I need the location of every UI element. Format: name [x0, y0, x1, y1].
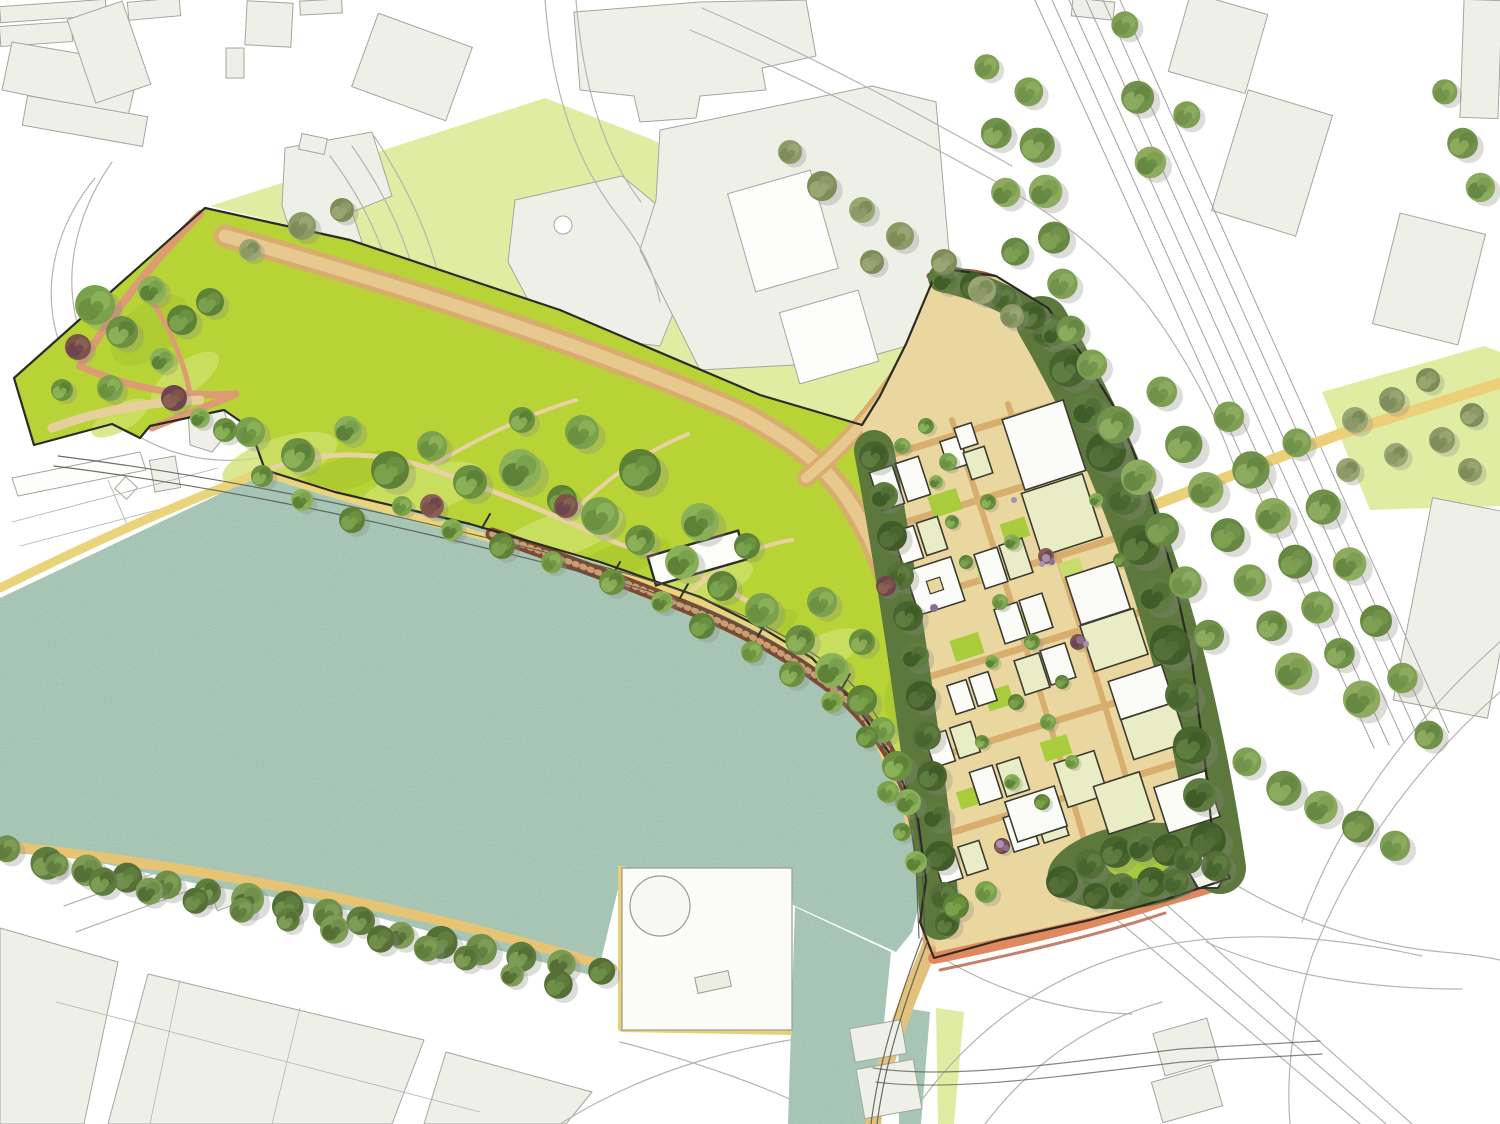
tree-canopy — [860, 207, 868, 215]
tree-canopy — [788, 150, 795, 157]
tree-canopy — [981, 741, 985, 745]
tree-canopy — [1226, 414, 1235, 423]
tree-canopy — [510, 972, 517, 979]
tree-canopy — [719, 583, 728, 592]
tree-canopy — [987, 500, 992, 505]
tree-canopy — [1112, 421, 1123, 432]
tree-canopy — [985, 64, 993, 72]
tree-canopy — [906, 799, 914, 807]
tree-canopy — [881, 493, 889, 501]
tree-canopy — [556, 982, 565, 991]
tree-canopy — [193, 898, 201, 906]
tree-canopy — [1213, 863, 1222, 872]
tree-canopy — [1392, 843, 1401, 852]
tree-canopy — [464, 956, 471, 963]
tree-canopy — [1051, 234, 1061, 244]
tree-canopy — [797, 637, 806, 646]
tree-canopy — [1346, 468, 1353, 475]
tree-canopy — [564, 504, 571, 511]
tree-canopy — [1159, 389, 1168, 398]
tree-canopy — [340, 208, 347, 215]
tree-canopy — [897, 233, 905, 241]
tree-canopy — [1121, 495, 1131, 505]
flower-bed — [1042, 554, 1050, 562]
tree-canopy — [119, 329, 129, 339]
tree-canopy — [198, 416, 204, 422]
site-plan-map — [0, 0, 1500, 1124]
tree-canopy — [1102, 448, 1114, 460]
tree-canopy — [929, 773, 938, 782]
tree-canopy — [1179, 692, 1189, 702]
tree-canopy — [984, 890, 991, 897]
tree-canopy — [295, 452, 305, 462]
tree-canopy — [900, 830, 905, 835]
tree-canopy — [1337, 650, 1346, 659]
tree-canopy — [207, 299, 215, 307]
tree-canopy — [332, 927, 341, 936]
tree-canopy — [945, 922, 952, 929]
flower-bed — [996, 840, 1004, 848]
tree-canopy — [223, 428, 230, 435]
tree-canopy — [951, 521, 955, 525]
tree-canopy — [1390, 397, 1398, 405]
tree-canopy — [1148, 159, 1157, 168]
tree-canopy — [925, 424, 930, 429]
building — [856, 1059, 922, 1118]
tree-canopy — [300, 498, 307, 505]
tree-canopy — [1113, 849, 1123, 859]
tree-canopy — [286, 917, 293, 924]
tree-canopy — [1139, 844, 1148, 853]
tree-canopy — [933, 813, 941, 821]
tree-canopy — [519, 954, 528, 963]
tree-canopy — [1013, 249, 1021, 257]
tree-canopy — [1292, 558, 1302, 568]
tree-canopy — [467, 479, 477, 489]
context-building — [226, 48, 244, 78]
plaza-circle — [630, 876, 690, 936]
tree-canopy — [55, 862, 62, 869]
tree-canopy — [759, 607, 769, 617]
tree-canopy — [1353, 417, 1361, 425]
tree-canopy — [597, 512, 608, 523]
tree-canopy — [1060, 281, 1069, 290]
tree-canopy — [1119, 559, 1123, 563]
tree-canopy — [1065, 364, 1076, 375]
tree-canopy — [76, 344, 84, 352]
context-building — [245, 1, 293, 47]
tree-canopy — [1166, 641, 1178, 653]
tree-canopy — [1011, 780, 1016, 785]
context-building — [554, 216, 572, 234]
tree-canopy — [247, 429, 256, 438]
tree-canopy — [610, 579, 618, 587]
tree-canopy — [1426, 732, 1435, 741]
tree-canopy — [1205, 836, 1216, 847]
tree-canopy — [790, 671, 798, 679]
flower-bed — [1083, 641, 1089, 647]
tree-canopy — [1281, 785, 1292, 796]
tree-canopy — [636, 466, 649, 479]
tree-canopy — [1294, 440, 1303, 449]
tree-canopy — [880, 727, 888, 735]
tree-canopy — [745, 543, 753, 551]
tree-canopy — [1184, 112, 1192, 120]
tree-canopy — [1029, 313, 1037, 321]
tree-canopy — [1122, 22, 1130, 30]
tree-canopy — [1400, 675, 1409, 684]
tree-canopy — [4, 846, 12, 854]
tree-canopy — [1470, 413, 1477, 420]
tree-canopy — [430, 504, 437, 511]
tree-canopy — [1059, 879, 1069, 889]
tree-canopy — [1314, 604, 1324, 614]
tree-canopy — [865, 735, 872, 742]
tree-canopy — [1159, 526, 1169, 536]
tree-canopy — [860, 639, 868, 647]
tree-canopy — [1180, 441, 1191, 452]
tree-canopy — [400, 504, 406, 510]
tree-canopy — [1041, 800, 1046, 805]
tree-canopy — [550, 560, 557, 567]
tree-canopy — [1320, 503, 1331, 514]
tree-canopy — [954, 903, 962, 911]
tree-canopy — [1225, 532, 1235, 542]
tree-canopy — [429, 443, 438, 452]
tree-canopy — [387, 466, 398, 477]
tree-canopy — [830, 700, 837, 707]
tree-canopy — [1290, 667, 1301, 678]
tree-canopy — [1358, 695, 1369, 706]
tree-canopy — [149, 287, 157, 295]
tree-canopy — [179, 317, 188, 326]
tree-canopy — [993, 130, 1002, 139]
tree-canopy — [599, 969, 607, 977]
tree-canopy — [100, 879, 109, 888]
tree-canopy — [450, 528, 457, 535]
tree-canopy — [1478, 184, 1487, 193]
tree-canopy — [859, 697, 868, 706]
tree-canopy — [1318, 804, 1328, 814]
masterplan-svg — [0, 0, 1500, 1124]
tree-canopy — [901, 444, 906, 449]
tree-canopy — [1206, 632, 1215, 641]
tree-canopy — [108, 385, 116, 393]
tree-canopy — [260, 474, 267, 481]
tree-canopy — [240, 908, 247, 915]
tree-canopy — [1269, 623, 1278, 632]
tree-canopy — [1182, 579, 1192, 589]
tree-canopy — [1095, 499, 1099, 503]
context-building — [1460, 0, 1500, 119]
tree-canopy — [884, 584, 890, 590]
tree-canopy — [1135, 474, 1146, 485]
tree-canopy — [894, 763, 903, 772]
tree-canopy — [1085, 407, 1095, 417]
tree-canopy — [1034, 142, 1045, 153]
tree-canopy — [1047, 720, 1052, 725]
tree-canopy — [905, 613, 914, 622]
tree-canopy — [1373, 618, 1383, 628]
tree-canopy — [1068, 327, 1077, 336]
tree-canopy — [378, 936, 386, 944]
tree-canopy — [924, 733, 932, 741]
tree-canopy — [871, 453, 880, 462]
tree-canopy — [1026, 89, 1035, 98]
tree-canopy — [829, 667, 839, 677]
tree-canopy — [559, 961, 568, 970]
tree-canopy — [1247, 577, 1257, 587]
tree-canopy — [248, 248, 255, 255]
tree-canopy — [1244, 759, 1253, 768]
tree-canopy — [1426, 378, 1433, 385]
tree-canopy — [1043, 188, 1053, 198]
tree-canopy — [358, 918, 367, 927]
tree-canopy — [870, 260, 877, 267]
tree-canopy — [942, 259, 950, 267]
tree-canopy — [914, 860, 921, 867]
tree-canopy — [1010, 314, 1017, 321]
tree-canopy — [516, 466, 529, 479]
tree-canopy — [819, 599, 828, 608]
tree-canopy — [1153, 591, 1164, 602]
tree-canopy — [679, 559, 689, 569]
tree-canopy — [1003, 189, 1012, 198]
flower-bed — [1011, 497, 1017, 503]
flower-bed — [1003, 845, 1009, 851]
tree-canopy — [520, 417, 528, 425]
tree-canopy — [897, 573, 905, 581]
tree-canopy — [1061, 681, 1065, 685]
tree-canopy — [889, 533, 898, 542]
flower-bed — [1039, 561, 1045, 567]
tree-canopy — [160, 358, 167, 365]
tree-canopy — [424, 946, 432, 954]
flower-bed — [1076, 636, 1084, 644]
tree-canopy — [750, 650, 757, 657]
tree-canopy — [912, 653, 920, 661]
tree-canopy — [1185, 857, 1193, 865]
tree-canopy — [918, 693, 927, 702]
tree-canopy — [1087, 861, 1096, 870]
tree-canopy — [886, 790, 893, 797]
tree-canopy — [946, 460, 951, 465]
tree-canopy — [1149, 879, 1158, 888]
tree-canopy — [1136, 541, 1148, 553]
tree-canopy — [697, 518, 708, 529]
tree-canopy — [1011, 540, 1016, 545]
tree-canopy — [979, 287, 987, 295]
tree-canopy — [125, 875, 134, 884]
tree-canopy — [935, 481, 939, 485]
tree-canopy — [1165, 847, 1175, 857]
tree-canopy — [172, 395, 180, 403]
tree-canopy — [1468, 468, 1475, 475]
tree-canopy — [299, 223, 307, 231]
tree-canopy — [147, 888, 155, 896]
tree-canopy — [819, 183, 828, 192]
flower-bed — [930, 604, 938, 612]
tree-canopy — [1119, 884, 1127, 892]
tree-canopy — [700, 623, 708, 631]
tree-canopy — [1197, 792, 1207, 802]
tree-canopy — [1460, 140, 1469, 149]
tree-canopy — [350, 517, 358, 525]
tree-canopy — [345, 427, 353, 435]
tree-canopy — [60, 388, 67, 395]
tree-canopy — [579, 429, 589, 439]
tree-canopy — [1270, 512, 1281, 523]
context-building — [149, 456, 180, 492]
tree-canopy — [1394, 453, 1401, 460]
tree-canopy — [1031, 640, 1036, 645]
tree-canopy — [1071, 761, 1075, 765]
tree-canopy — [1443, 89, 1451, 97]
tree-canopy — [1248, 466, 1259, 477]
tree-canopy — [999, 600, 1004, 605]
tree-canopy — [1355, 823, 1365, 833]
tree-canopy — [1203, 486, 1214, 497]
tree-canopy — [1094, 893, 1102, 901]
tree-canopy — [1189, 741, 1200, 752]
tree-canopy — [1089, 362, 1098, 371]
tree-canopy — [1135, 94, 1145, 104]
tree-canopy — [500, 543, 508, 551]
tree-canopy — [660, 600, 667, 607]
tree-canopy — [91, 301, 103, 313]
tree-canopy — [1440, 437, 1448, 445]
tree-canopy — [637, 537, 646, 546]
tree-canopy — [1015, 700, 1020, 705]
tree-canopy — [1347, 561, 1357, 571]
tree-canopy — [965, 561, 969, 565]
tree-canopy — [1174, 879, 1182, 887]
flower-bed — [1049, 559, 1055, 565]
context-building — [300, 0, 343, 15]
tree-canopy — [399, 933, 407, 941]
tree-canopy — [991, 661, 995, 665]
tree-canopy — [937, 853, 946, 862]
tree-canopy — [1002, 295, 1010, 303]
